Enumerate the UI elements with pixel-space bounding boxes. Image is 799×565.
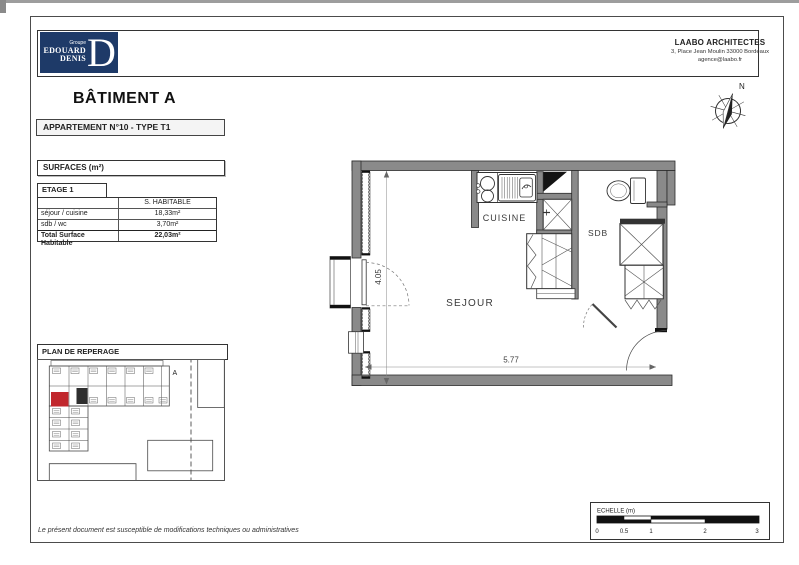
surfaces-table: S. HABITABLE séjour / cuisine 18,33m² sd… — [37, 197, 217, 242]
floor-label: ETAGE 1 — [37, 183, 107, 198]
architect-address: 3, Place Jean Moulin 33000 Bordeaux — [638, 49, 799, 57]
table-row: sdb / wc 3,70m² — [38, 219, 216, 230]
scale-title: ECHELLE (m) — [597, 509, 635, 515]
apartment-title: APPARTEMENT N°10 - TYPE T1 — [36, 119, 225, 136]
dim-width-label: 5.77 — [503, 356, 519, 365]
stairwell-block — [77, 388, 88, 404]
sdb-door — [583, 304, 616, 328]
scale-bar: ECHELLE (m) 0 0.5 1 2 3 — [590, 502, 770, 540]
north-label: N — [739, 82, 745, 91]
edouard-denis-logo: Groupe EDOUARD DENIS D — [40, 32, 118, 73]
shower — [543, 199, 572, 230]
kitchen-counter — [476, 173, 537, 203]
architect-name: LAABO ARCHITECTES — [638, 38, 799, 49]
door-leaf — [593, 304, 617, 328]
scale-bar-svg: ECHELLE (m) 0 0.5 1 2 3 — [591, 503, 769, 539]
toilet-fixture — [607, 178, 646, 204]
logo-text: Groupe EDOUARD DENIS — [40, 41, 86, 63]
row-value: 3,70m² — [118, 220, 216, 230]
row-label: séjour / cuisine — [38, 209, 118, 219]
logo-monogram: D — [87, 33, 116, 73]
column-header: S. HABITABLE — [118, 198, 216, 208]
table-row: séjour / cuisine 18,33m² — [38, 208, 216, 219]
door-swing-arc — [583, 304, 592, 328]
dimension-width: 5.77 — [365, 356, 656, 370]
total-label: Total Surface Habitable — [38, 231, 118, 241]
room-label-sejour: SEJOUR — [446, 298, 494, 309]
plan-sheet: Groupe EDOUARD DENIS D LAABO ARCHITECTES… — [0, 0, 799, 565]
duct-shaft-wedge — [544, 172, 568, 192]
architect-block: LAABO ARCHITECTES 3, Place Jean Moulin 3… — [638, 38, 799, 64]
empty-header-cell — [38, 198, 118, 208]
building-title: BÂTIMENT A — [73, 90, 176, 108]
scale-tick: 0 — [595, 529, 599, 535]
scale-tick: 1 — [649, 529, 653, 535]
balcony-door — [330, 257, 409, 309]
room-label-cuisine: CUISINE — [483, 213, 527, 223]
scale-tick: 0.5 — [620, 529, 629, 535]
reperage-title: PLAN DE REPERAGE — [37, 344, 228, 360]
site-units — [53, 368, 168, 449]
folding-door-marks — [625, 300, 661, 309]
door-leaf — [362, 260, 366, 305]
wall-shower-left — [537, 172, 544, 239]
table-total-row: Total Surface Habitable 22,03m² — [38, 230, 216, 241]
title-block: Groupe EDOUARD DENIS D LAABO ARCHITECTES… — [37, 30, 759, 77]
dim-height-label: 4.05 — [374, 269, 383, 285]
site-building-label: A — [173, 370, 178, 377]
entrance-door — [627, 328, 668, 371]
site-plan-svg: A — [38, 360, 224, 480]
fixed-window — [349, 332, 364, 354]
dimension-height: 4.05 — [374, 171, 389, 385]
floor-plan-svg: 4.05 5.77 CUISINE SDB SEJOUR — [322, 148, 682, 392]
wall-left-upper — [352, 161, 361, 258]
highlighted-unit — [51, 392, 69, 407]
scale-tick: 2 — [703, 529, 707, 535]
wall-bottom — [352, 375, 672, 386]
table-header-row: S. HABITABLE — [38, 198, 216, 208]
wall-duct-bottom — [537, 193, 576, 199]
scan-corner — [0, 0, 6, 13]
scan-edge — [0, 0, 799, 3]
total-value: 22,03m² — [118, 231, 216, 241]
wall-top — [352, 161, 675, 171]
surfaces-box-title: SURFACES (m²) — [37, 160, 225, 176]
wall-sdb-divider — [572, 171, 579, 300]
compass-star — [706, 89, 750, 133]
footer-disclaimer: Le présent document est susceptible de m… — [38, 527, 299, 534]
wall-wc-stub — [647, 202, 667, 207]
closet-1 — [527, 234, 575, 299]
reperage-map: A — [37, 359, 225, 481]
sink — [499, 175, 536, 202]
door-swing-arc — [627, 331, 667, 371]
technical-shaft — [620, 219, 665, 266]
row-label: sdb / wc — [38, 220, 118, 230]
row-value: 18,33m² — [118, 209, 216, 219]
compass-rose: N — [703, 78, 758, 133]
wall-wc-alcove — [667, 171, 675, 206]
logo-name-line2: DENIS — [60, 55, 86, 63]
room-label-sdb: SDB — [588, 228, 608, 238]
architect-email: agence@laabo.fr — [638, 57, 799, 65]
scale-tick: 3 — [755, 529, 759, 535]
door-swing-arc — [366, 263, 409, 306]
